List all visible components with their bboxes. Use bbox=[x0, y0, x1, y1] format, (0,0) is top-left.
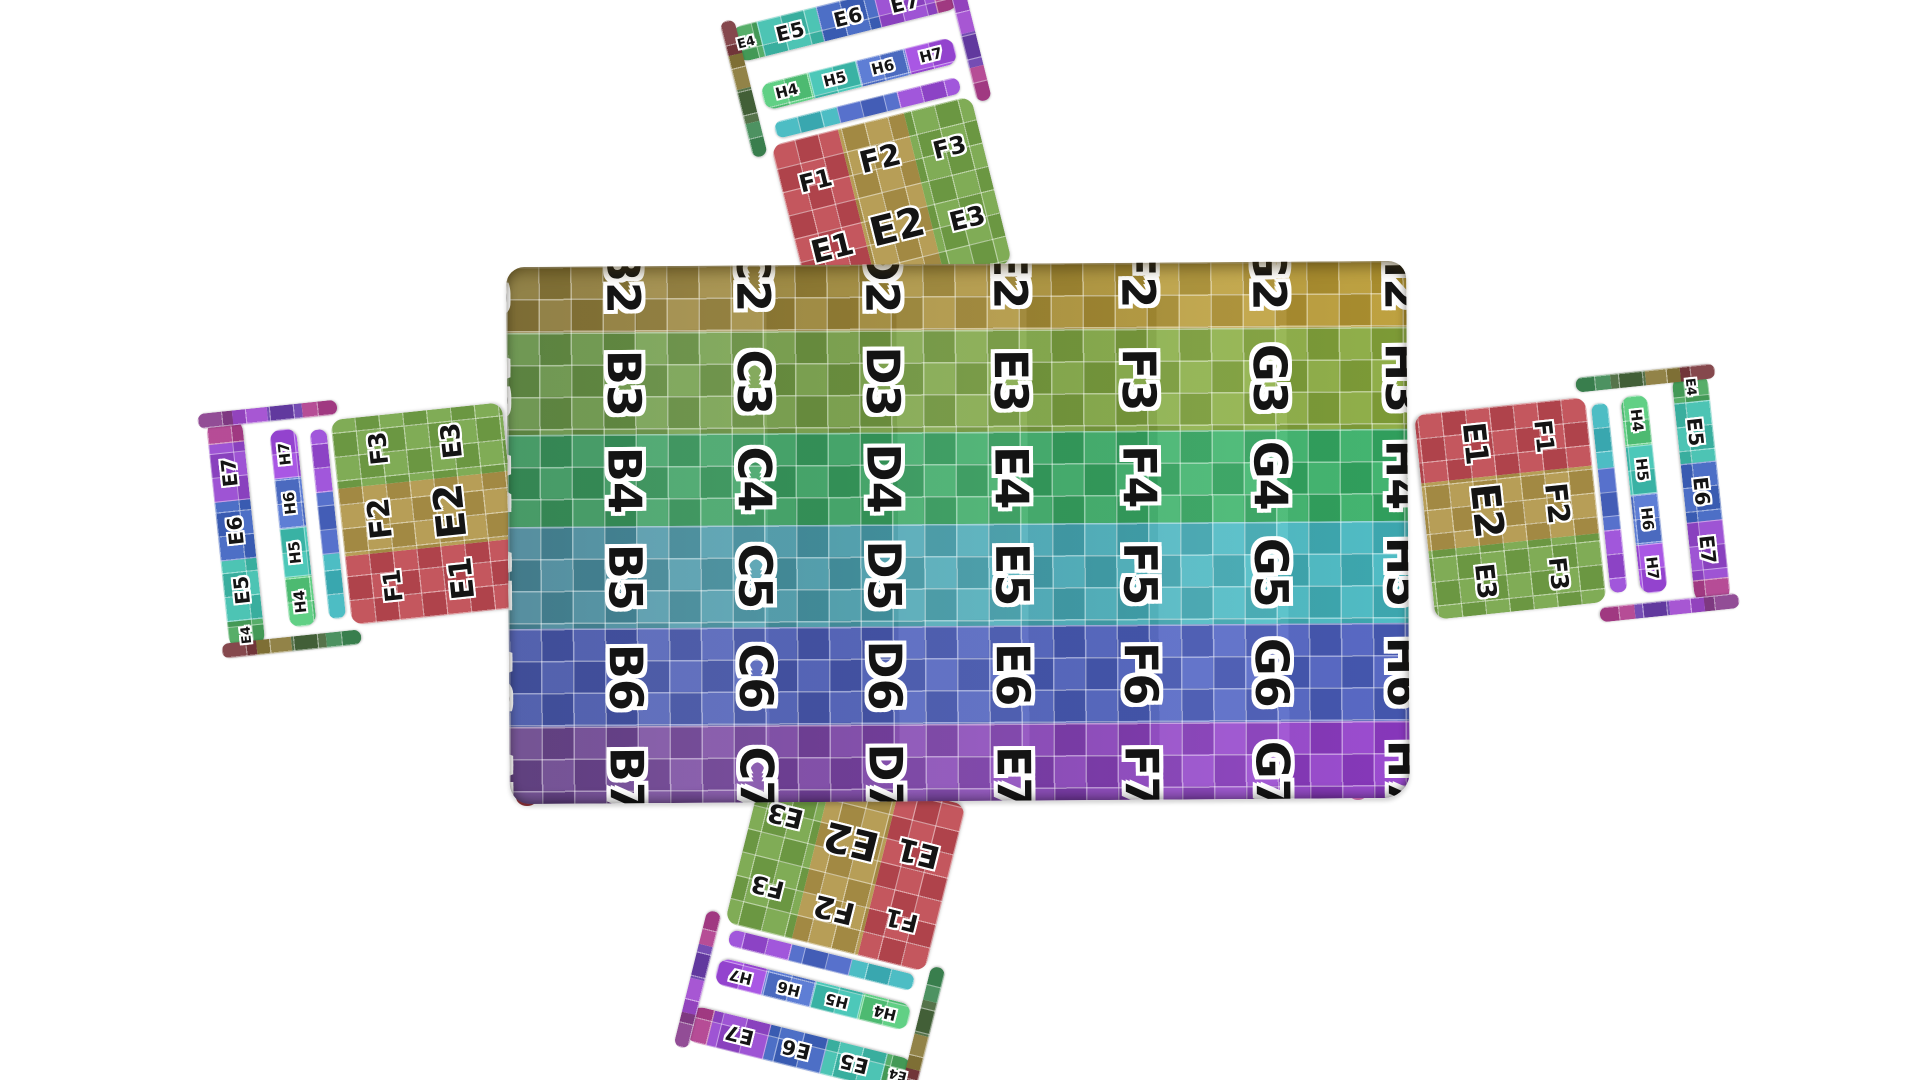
chair-seat-label: E3 bbox=[765, 798, 806, 832]
table-cell-label: G4 bbox=[1247, 441, 1293, 511]
chair-back-middle-slat-label: H5 bbox=[287, 540, 304, 564]
chair-back-top-rail-segment: E5 bbox=[757, 7, 825, 57]
table-cell-label: F3 bbox=[1116, 348, 1162, 412]
chair-seat-label: E1 bbox=[894, 832, 943, 872]
chair-post-segment bbox=[326, 629, 362, 648]
table-cell-label: D4 bbox=[860, 443, 906, 514]
chair-back-bottom-rail-segment bbox=[322, 553, 346, 619]
chair-back-middle-slat: H4H5H6H7 bbox=[1620, 394, 1668, 594]
chair-seat-label: E3 bbox=[1470, 562, 1500, 600]
table-cell-label: A3 bbox=[506, 350, 512, 418]
chair-back-top-rail-label: E5 bbox=[837, 1050, 871, 1077]
table-cell-label: D7 bbox=[862, 743, 908, 804]
table-cell-label: C3 bbox=[731, 349, 777, 415]
chair-back-bottom-rail-segment bbox=[1591, 403, 1615, 469]
chair-back-top-rail-segment: E6 bbox=[214, 499, 256, 561]
chair-back-top-rail-label: E6 bbox=[832, 4, 866, 31]
table-cell-label: H5 bbox=[1380, 536, 1410, 607]
table-cell-label: D3 bbox=[860, 346, 906, 417]
chair-back-top-rail-segment: E7 bbox=[706, 1011, 771, 1060]
chair-post-segment bbox=[1575, 374, 1611, 393]
chair-post-segment bbox=[923, 966, 946, 1004]
chair-back-top-rail-segment: E7 bbox=[1687, 519, 1729, 581]
table-cell-label: G7 bbox=[1249, 741, 1295, 804]
chair-post-segment bbox=[736, 87, 759, 125]
chair-seat-label: E2 bbox=[428, 482, 474, 541]
chair-back-middle-slat-label: H4 bbox=[292, 589, 309, 613]
chair-post-segment bbox=[906, 1034, 929, 1072]
chair-back-top-rail: E4E5E6E7 bbox=[1671, 370, 1731, 606]
chair-back-middle-slat-segment: H6 bbox=[856, 49, 911, 87]
chair-post-segment bbox=[699, 910, 722, 948]
chair-seat: F1E1F2E2F3E3 bbox=[330, 402, 523, 625]
chair-post-segment bbox=[267, 403, 303, 422]
chair-post-segment bbox=[915, 1000, 938, 1038]
chair-back-middle-slat-label: H6 bbox=[870, 58, 896, 78]
chair-seat: F1E1F2E2F3E3 bbox=[1414, 397, 1607, 620]
chair-back-top-rail-label: E4 bbox=[736, 34, 757, 51]
chair-back-middle-slat-segment: H4 bbox=[1620, 394, 1652, 446]
chair-seat-label: F3 bbox=[749, 871, 787, 902]
table-cell-label: C7 bbox=[733, 746, 779, 804]
chair-back-middle-slat-label: H7 bbox=[728, 966, 754, 986]
chair-back-middle-slat-segment: H4 bbox=[858, 993, 913, 1031]
chair-post-segment bbox=[1610, 370, 1646, 389]
chair-back-bottom-rail-segment bbox=[1604, 529, 1627, 593]
table-cell-label: B4 bbox=[601, 447, 647, 514]
chair-back-top-rail-label: E4 bbox=[1683, 377, 1698, 396]
chair-seat-label: E1 bbox=[1456, 421, 1491, 467]
chair-back-bottom-rail-segment bbox=[309, 429, 332, 493]
uv-grid-overlay bbox=[309, 429, 332, 493]
chair-back-top-rail-segment: E5 bbox=[1674, 400, 1716, 464]
chair-back-middle-slat-segment: H5 bbox=[1625, 444, 1657, 496]
table-cell-label: F4 bbox=[1116, 445, 1162, 509]
chair-post-segment bbox=[952, 0, 975, 34]
chair-post-segment bbox=[745, 121, 768, 159]
chair-back-top-rail-label: E4 bbox=[239, 625, 254, 644]
chair-back-bottom-rail-segment bbox=[316, 491, 339, 555]
chair-post-segment bbox=[1599, 604, 1635, 623]
chair-post-segment bbox=[1634, 600, 1670, 619]
chair-back-middle-slat-segment: H6 bbox=[762, 969, 817, 1007]
table-cell-label: H4 bbox=[1379, 439, 1410, 510]
table-cell-label: D5 bbox=[861, 540, 907, 611]
table-cell-label: D2 bbox=[859, 261, 905, 314]
chair-back-middle-slat-label: H7 bbox=[1643, 556, 1660, 580]
uv-grid-overlay bbox=[1591, 403, 1615, 469]
table-cell-label: H7 bbox=[1381, 739, 1409, 804]
chair-back-top-rail-label: E7 bbox=[888, 0, 922, 16]
table-cell-label: A7 bbox=[506, 747, 515, 804]
chair-back-middle-slat-segment: H5 bbox=[279, 526, 311, 578]
chair-back-middle-slat-label: H4 bbox=[774, 82, 800, 102]
chair-back-top-rail-label: E6 bbox=[779, 1036, 813, 1063]
chair-back-middle-slat-segment: H7 bbox=[269, 428, 301, 480]
chair-back-middle-slat-label: H5 bbox=[824, 990, 850, 1010]
chair-back-middle-slat-segment: H6 bbox=[274, 477, 306, 529]
chair-back-middle-slat-label: H6 bbox=[776, 978, 802, 998]
chair-seat-label: F1 bbox=[1531, 419, 1558, 454]
chair-post-segment bbox=[1704, 593, 1740, 612]
table-cell-label: C5 bbox=[732, 543, 778, 609]
chair-back-top-rail-label: E7 bbox=[218, 456, 241, 488]
table-cell-label: E4 bbox=[988, 446, 1034, 510]
chair-back-right-post bbox=[197, 400, 338, 430]
chair-back-top-rail-segment: E6 bbox=[1681, 461, 1723, 523]
table-cell-label: E2 bbox=[987, 261, 1033, 310]
table-cell-label: E5 bbox=[989, 543, 1035, 607]
chair-post-segment bbox=[961, 31, 984, 69]
table-cell-label: C6 bbox=[733, 643, 779, 709]
table-cell-label: E6 bbox=[990, 643, 1036, 707]
chair-back-middle-slat-label: H7 bbox=[276, 442, 293, 466]
uv-grid-overlay bbox=[322, 553, 346, 619]
chair-back-middle-slat-label: H6 bbox=[282, 491, 299, 515]
table-cell-label: F5 bbox=[1117, 542, 1163, 606]
table-cell-label: H6 bbox=[1381, 636, 1410, 707]
chair-seat-label: F2 bbox=[1539, 481, 1573, 525]
chair-post-segment bbox=[232, 407, 268, 426]
chair-seat-label: F3 bbox=[931, 132, 969, 163]
chair-seat-label: F3 bbox=[1545, 556, 1572, 591]
table-cell-label: G2 bbox=[1246, 261, 1292, 311]
uv-grid-overlay bbox=[316, 491, 339, 555]
table-cell-label: A6 bbox=[506, 644, 514, 712]
chair-seat-label: F1 bbox=[883, 905, 921, 936]
chair-back-middle-slat-label: H5 bbox=[1633, 457, 1650, 481]
chair-back-bottom-rail-segment bbox=[1598, 467, 1621, 531]
chair-post-segment bbox=[291, 633, 327, 652]
stage: E4E5E6E7H4H5H6H7F1E1F2E2F3E3 E4E5E6E7H4H… bbox=[0, 0, 1920, 1080]
chair-back-top-rail-label: E4 bbox=[888, 1066, 909, 1080]
chair-seat-label: F2 bbox=[811, 889, 858, 928]
chair-post-segment bbox=[690, 944, 713, 982]
chair-back-top-rail-label: E5 bbox=[774, 18, 808, 45]
chair-seat-label: F1 bbox=[379, 568, 406, 603]
table-cell-label: E3 bbox=[988, 349, 1034, 413]
chair-back-middle-slat-label: H5 bbox=[822, 70, 848, 90]
table-cell-label: H2 bbox=[1378, 261, 1410, 310]
chair-post-segment bbox=[969, 65, 992, 103]
table: A2B2C2D2E2F2G2H2A3B3C3D3E3F3G3H3A4B4C4D4… bbox=[506, 261, 1410, 804]
chair-back-top-rail-segment: E6 bbox=[763, 1025, 828, 1074]
chair-back-top-rail-segment: E7 bbox=[872, 0, 937, 27]
chair-back-middle-slat-segment: H5 bbox=[810, 981, 865, 1019]
chair-seat-label: E2 bbox=[820, 814, 883, 866]
chair-back-top-rail-label: E6 bbox=[1690, 476, 1713, 508]
chair-back-middle-slat-label: H6 bbox=[1638, 507, 1655, 531]
chair-back-top-rail-segment: E5 bbox=[820, 1039, 888, 1080]
table-cell-label: D6 bbox=[862, 640, 908, 711]
table-cell-label: F6 bbox=[1118, 642, 1164, 706]
chair-back-middle-slat-label: H4 bbox=[1628, 408, 1645, 432]
chair-back-middle-slat-label: H7 bbox=[918, 46, 944, 66]
chair-back-middle-slat-segment: H7 bbox=[714, 957, 769, 995]
chair-seat-label: E3 bbox=[437, 421, 467, 459]
chair-left: E4E5E6E7H4H5H6H7F1E1F2E2F3E3 bbox=[205, 380, 529, 660]
table-cell-label: B3 bbox=[601, 350, 647, 417]
chair-seat-label: F2 bbox=[363, 496, 397, 540]
chair-back-middle-slat-segment: H7 bbox=[904, 37, 959, 75]
uv-grid-overlay bbox=[1604, 529, 1627, 593]
chair-back-middle-slat-segment: H5 bbox=[808, 61, 863, 99]
table-cell-label: G6 bbox=[1249, 638, 1295, 708]
chair-seat-label: F1 bbox=[797, 165, 835, 196]
table-cell-label: H3 bbox=[1379, 342, 1410, 413]
chair-seat-label: E3 bbox=[947, 202, 988, 236]
table-cell-label: B7 bbox=[603, 747, 649, 805]
chair-back-middle-slat: H4H5H6H7 bbox=[269, 428, 317, 628]
chair-back-right-post bbox=[1599, 593, 1740, 623]
chair-post-segment bbox=[256, 637, 292, 656]
chair-back-top-rail-segment: E7 bbox=[208, 441, 250, 503]
chair-back-top-rail-label: E7 bbox=[722, 1022, 756, 1049]
chair-post-segment bbox=[1669, 597, 1705, 616]
chair-right: E4E5E6E7H4H5H6H7F1E1F2E2F3E3 bbox=[1408, 362, 1732, 642]
chair-back-top-rail-label: E5 bbox=[1684, 417, 1707, 449]
chair-back-top-rail-segment: E6 bbox=[816, 0, 881, 42]
chair-back-top-rail-label: E6 bbox=[224, 515, 247, 547]
chair-back-middle-slat-segment: H4 bbox=[285, 576, 317, 628]
table-cell-label: B2 bbox=[600, 261, 646, 314]
chair-back-top-rail-label: E5 bbox=[230, 574, 253, 606]
chair-back-top-rail-segment: E5 bbox=[221, 558, 263, 622]
table-cell-label: F7 bbox=[1118, 745, 1164, 804]
chair-back-top-rail-label: E7 bbox=[1696, 534, 1719, 566]
table-cell-label: B6 bbox=[603, 644, 649, 711]
chair-seat-label: E1 bbox=[445, 555, 480, 601]
table-cell-label: E7 bbox=[990, 746, 1036, 804]
table-cell-label: B5 bbox=[602, 544, 648, 611]
chair-seat-label: F3 bbox=[365, 431, 392, 466]
uv-grid-overlay bbox=[1598, 467, 1621, 531]
table-cell-label: C4 bbox=[731, 446, 777, 512]
chair-back-top-rail: E4E5E6E7 bbox=[206, 416, 266, 652]
chair-back-middle-slat-label: H4 bbox=[872, 1002, 898, 1022]
table-cell-label: A4 bbox=[506, 447, 513, 515]
chair-back-middle-slat-segment: H4 bbox=[760, 73, 815, 111]
table-cell-label: C2 bbox=[730, 261, 776, 313]
table-cell-label: G3 bbox=[1247, 344, 1293, 414]
tablecloth: A2B2C2D2E2F2G2H2A3B3C3D3E3F3G3H3A4B4C4D4… bbox=[506, 261, 1410, 804]
chair-back-middle-slat-segment: H6 bbox=[1631, 493, 1663, 545]
chair-back-middle-slat-segment: H7 bbox=[1636, 542, 1668, 594]
table-cell-label: A2 bbox=[506, 261, 511, 315]
chair-post-segment bbox=[301, 400, 337, 419]
chair-seat-label: E2 bbox=[1464, 481, 1510, 540]
table-cell-label: F2 bbox=[1115, 261, 1161, 309]
table-cell-label: G5 bbox=[1248, 538, 1294, 608]
